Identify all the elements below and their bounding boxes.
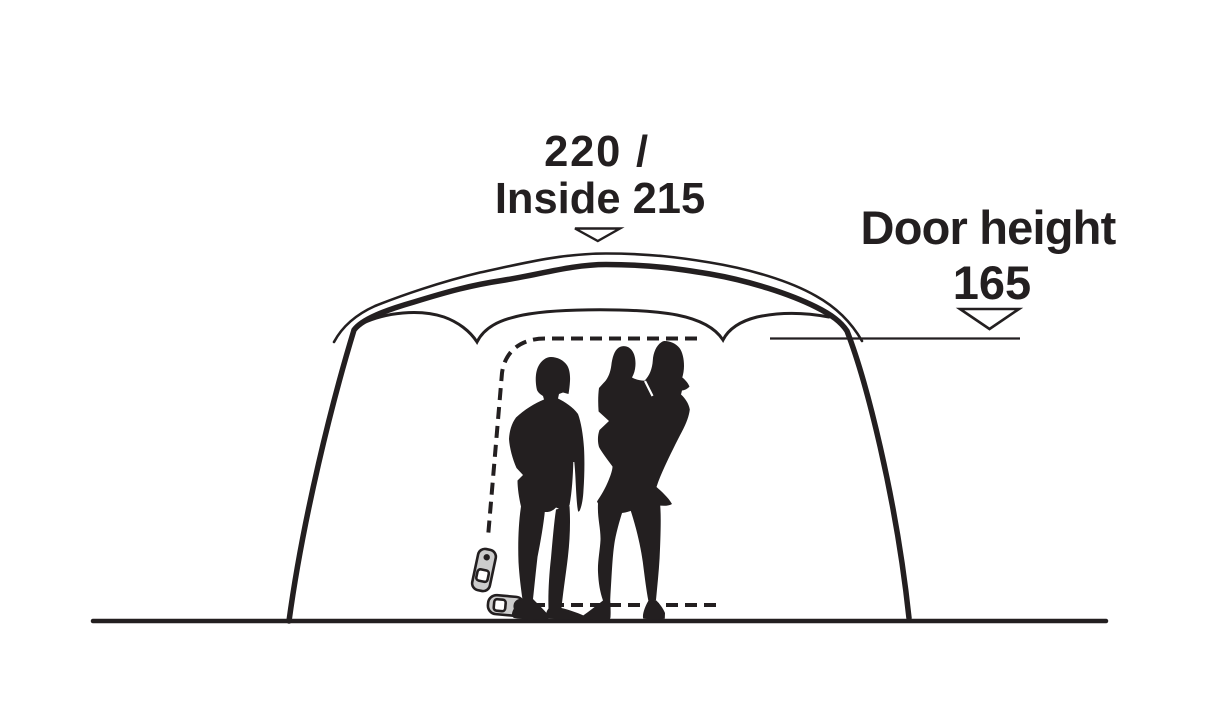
svg-text:165: 165 bbox=[953, 256, 1031, 309]
svg-text:Door height: Door height bbox=[861, 201, 1117, 254]
svg-text:220 /: 220 / bbox=[544, 128, 650, 176]
svg-text:Inside 215: Inside 215 bbox=[495, 175, 705, 223]
